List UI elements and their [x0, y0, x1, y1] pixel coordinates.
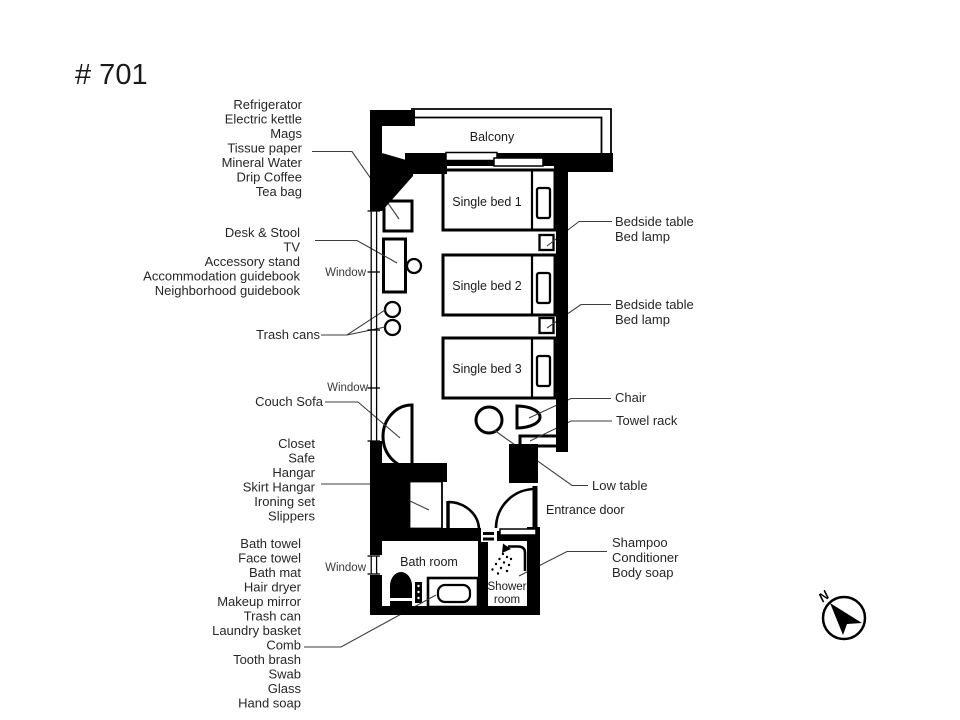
- room-label-bathroom: Bath room: [400, 555, 458, 569]
- room-label-shower-2: room: [494, 594, 520, 606]
- wall-segment: [527, 527, 540, 615]
- label-accommodation-guidebook: Accommodation guidebook: [143, 269, 300, 284]
- leader-line-trash-1: [321, 310, 385, 335]
- label-entrance-door: Entrance door: [546, 503, 625, 517]
- label-comb: Comb: [266, 638, 301, 653]
- label-bedside-table-1: Bedside table: [615, 214, 694, 229]
- label-safe: Safe: [288, 451, 315, 466]
- label-glass: Glass: [268, 681, 302, 696]
- label-bath-towel: Bath towel: [240, 536, 301, 551]
- closet-label-group: Closet Safe Hangar Skirt Hangar Ironing …: [243, 436, 316, 524]
- label-makeup-mirror: Makeup mirror: [217, 594, 301, 609]
- sink-icon: [428, 578, 478, 607]
- trash-can-icon: [385, 320, 400, 335]
- pillow-icon: [537, 273, 550, 303]
- label-swab: Swab: [268, 667, 301, 682]
- window-main-icon: [368, 211, 381, 441]
- wall-segment: [370, 110, 382, 211]
- label-window-3: Window: [325, 562, 367, 574]
- label-skirt-hangar: Skirt Hangar: [243, 480, 316, 495]
- wall-segment: [382, 482, 410, 528]
- room-label-balcony: Balcony: [470, 130, 515, 144]
- label-window-1: Window: [325, 267, 367, 279]
- wall-segment: [370, 528, 481, 541]
- sliding-door-icon: [446, 153, 497, 161]
- label-hand-soap: Hand soap: [238, 696, 301, 711]
- label-laundry-basket: Laundry basket: [212, 623, 301, 638]
- label-tooth-brash: Tooth brash: [233, 652, 301, 667]
- wall-segment: [377, 463, 447, 482]
- label-chair: Chair: [615, 390, 647, 405]
- entrance-door-icon: [496, 486, 535, 529]
- page-title: # 701: [75, 59, 148, 91]
- wall-segment: [556, 163, 568, 452]
- wall-segment: [405, 153, 447, 174]
- label-refrigerator: Refrigerator: [233, 97, 302, 112]
- label-closet: Closet: [278, 436, 315, 451]
- bedside-label-group-2: Bedside table Bed lamp: [615, 297, 694, 327]
- room-label-bed-1: Single bed 1: [452, 195, 522, 209]
- pillow-icon: [537, 356, 550, 386]
- closet-interior: [410, 482, 443, 529]
- label-mags: Mags: [270, 126, 302, 141]
- room-label-shower-1: Shower: [488, 581, 527, 593]
- sliding-door-icon: [494, 158, 543, 166]
- label-hair-dryer: Hair dryer: [244, 580, 302, 595]
- shower-door-icon: [483, 532, 494, 535]
- low-table-icon: [476, 407, 502, 433]
- label-desk-stool: Desk & Stool: [225, 225, 300, 240]
- label-slippers: Slippers: [268, 509, 315, 524]
- label-trash-can: Trash can: [244, 609, 301, 624]
- trash-can-icon: [385, 302, 400, 317]
- label-bedside-table-2: Bedside table: [615, 297, 694, 312]
- label-tea-bag: Tea bag: [256, 184, 302, 199]
- toilet-control-icon: [415, 582, 422, 603]
- label-window-2: Window: [327, 382, 369, 394]
- label-face-towel: Face towel: [238, 551, 301, 566]
- label-body-soap: Body soap: [612, 565, 673, 580]
- label-electric-kettle: Electric kettle: [225, 112, 302, 127]
- wall-shaft: [509, 444, 538, 483]
- label-accessory-stand: Accessory stand: [205, 254, 300, 269]
- label-bed-lamp-1: Bed lamp: [615, 229, 670, 244]
- label-trash-cans: Trash cans: [256, 327, 320, 342]
- label-ironing-set: Ironing set: [254, 494, 315, 509]
- room-label-bed-3: Single bed 3: [452, 362, 522, 376]
- label-low-table: Low table: [592, 478, 648, 493]
- label-conditioner: Conditioner: [612, 550, 679, 565]
- bath-label-group: Bath towel Face towel Bath mat Hair drye…: [212, 536, 302, 711]
- label-hangar: Hangar: [272, 465, 315, 480]
- label-couch-sofa: Couch Sofa: [255, 394, 324, 409]
- label-mineral-water: Mineral Water: [222, 155, 303, 170]
- room-label-bed-2: Single bed 2: [452, 279, 522, 293]
- wall-segment: [478, 537, 488, 607]
- chair-icon: [517, 406, 540, 428]
- label-tissue-paper: Tissue paper: [227, 141, 302, 156]
- entrance-threshold: [500, 529, 536, 535]
- refrigerator-icon: [384, 201, 412, 231]
- desk-label-group: Desk & Stool TV Accessory stand Accommod…: [143, 225, 300, 298]
- compass-north-icon: N: [815, 587, 865, 639]
- leader-line-chair: [529, 399, 611, 419]
- pillow-icon: [537, 188, 550, 218]
- toilet-icon: [390, 572, 412, 607]
- label-drip-coffee: Drip Coffee: [236, 170, 302, 185]
- shower-head-icon: [491, 544, 525, 575]
- wall-segment: [370, 606, 540, 615]
- label-shampoo: Shampoo: [612, 535, 668, 550]
- bedside-label-group-1: Bedside table Bed lamp: [615, 214, 694, 244]
- shower-door-icon: [483, 538, 494, 541]
- stool-icon: [407, 259, 421, 273]
- closet-door-icon: [448, 501, 479, 531]
- desk-icon: [384, 239, 406, 292]
- shampoo-label-group: Shampoo Conditioner Body soap: [612, 535, 679, 580]
- label-neighborhood-guidebook: Neighborhood guidebook: [155, 283, 301, 298]
- amenity-label-group: Refrigerator Electric kettle Mags Tissue…: [222, 97, 303, 199]
- label-bed-lamp-2: Bed lamp: [615, 312, 670, 327]
- label-towel-rack: Towel rack: [616, 413, 678, 428]
- label-bath-mat: Bath mat: [249, 565, 301, 580]
- label-tv: TV: [283, 240, 300, 255]
- floor-plan-canvas: # 701 Balcony Single bed 1 Single bed 2 …: [0, 0, 960, 720]
- floor-plan-page: # 701 Balcony Single bed 1 Single bed 2 …: [0, 0, 960, 720]
